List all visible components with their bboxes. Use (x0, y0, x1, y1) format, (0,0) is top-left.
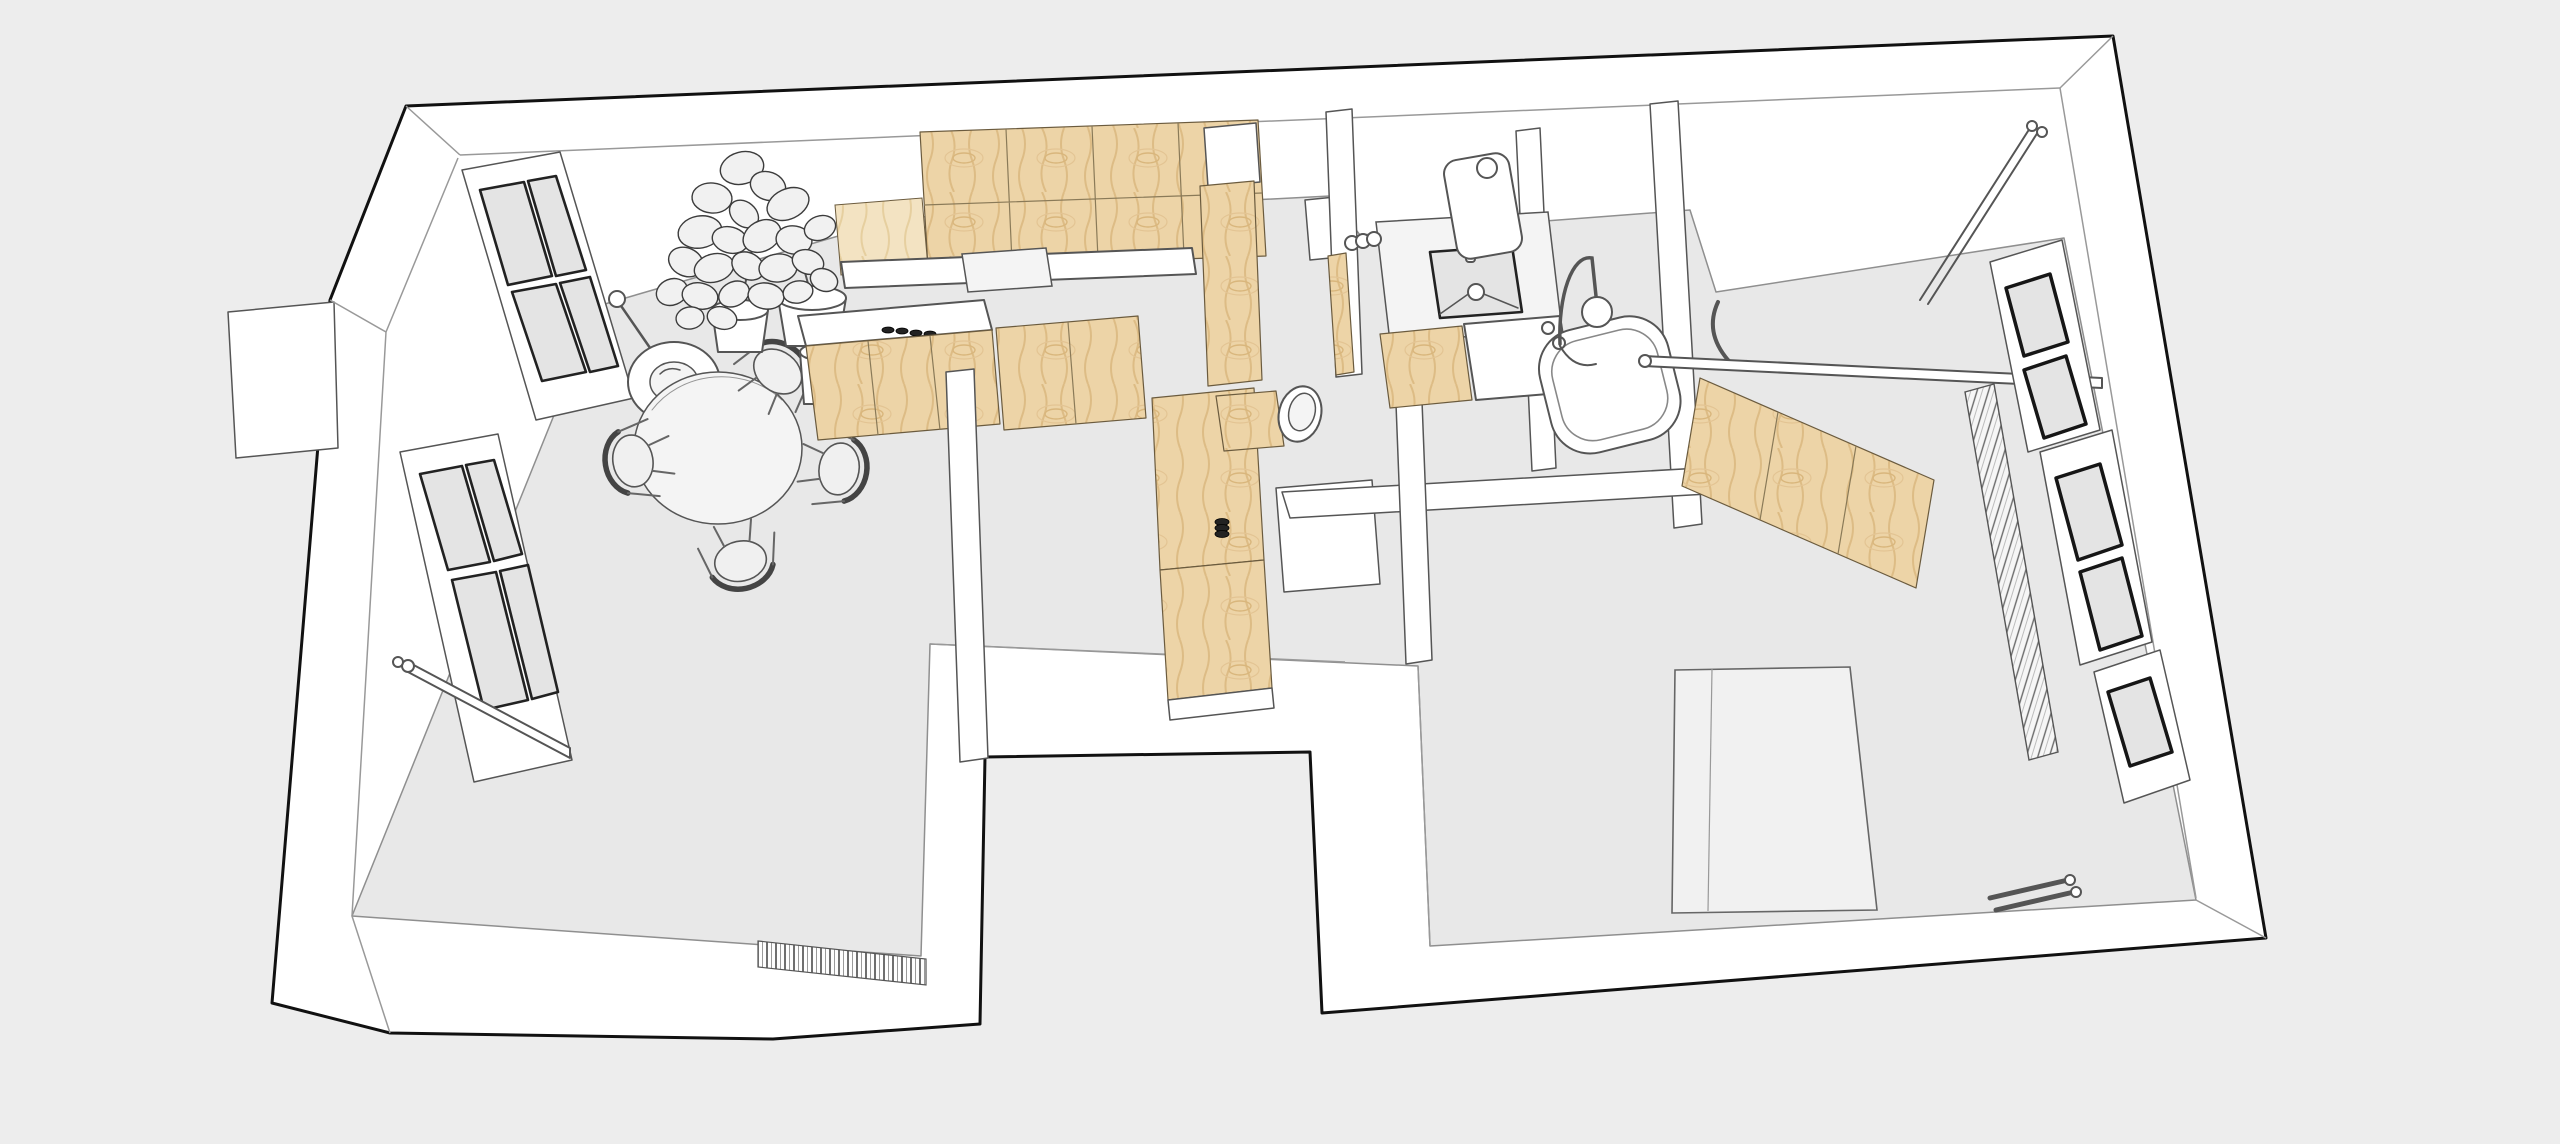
shower-head (1582, 297, 1612, 327)
wall-box (228, 302, 338, 458)
bed (1672, 667, 1877, 913)
kitchen-sink (962, 248, 1052, 292)
vanity-wood-front (1380, 326, 1472, 408)
toilet-cistern-box (1216, 391, 1284, 451)
floor-plan-canvas (0, 0, 2560, 1144)
door-stop (1215, 519, 1229, 538)
sink-drain (1468, 284, 1484, 300)
cord-anchor (609, 291, 625, 307)
kitchen-appliance-box (1204, 123, 1260, 187)
kitchen-tall-cabinet (1200, 181, 1262, 386)
floor-plan-svg (0, 0, 2560, 1144)
